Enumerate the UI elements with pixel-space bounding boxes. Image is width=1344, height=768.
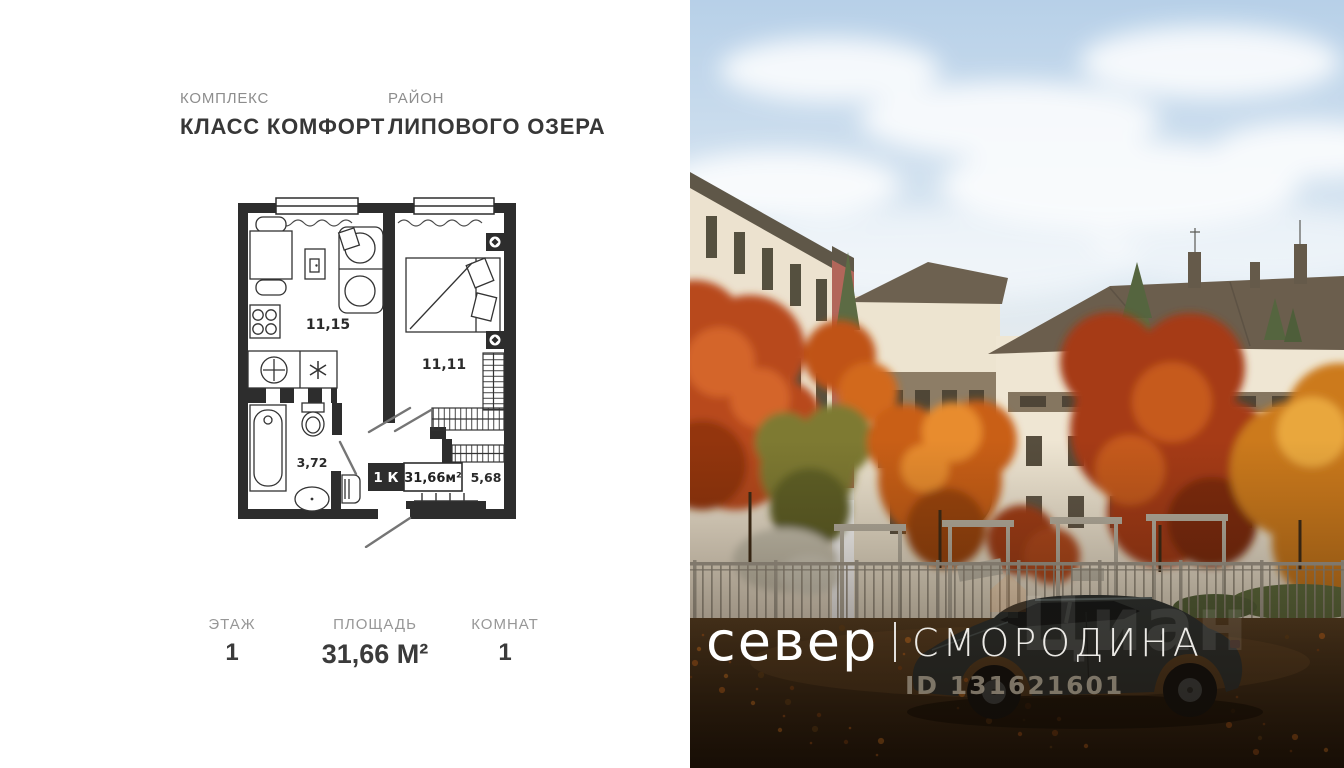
stat-rooms-value: 1 [445,639,565,667]
listing-card: КОМПЛЕКС КЛАСС КОМФОРТ РАЙОН ЛИПОВОГО ОЗ… [0,0,1344,768]
stat-area: ПЛОЩАДЬ 31,66 М² [295,616,455,670]
listing-id-watermark: ID 131621601 [905,671,1124,700]
curtain-lines [268,220,482,226]
floor-plan: 11,15 11,11 3,72 5,68 1 К 31,66м² [238,195,516,548]
complex-label: КОМПЛЕКС [180,90,385,107]
badge-rooms: 1 К [373,470,398,486]
floor-plan-svg: 11,15 11,11 3,72 5,68 1 К 31,66м² [238,195,516,548]
stat-floor-value: 1 [172,639,292,667]
caption-divider [894,622,896,662]
plan-badge: 1 К 31,66м² [368,463,462,491]
chair-icon [256,217,286,232]
stat-rooms-label: КОМНАТ [445,616,565,633]
render-scene: Циан север СМОРОДИНА ID 131621601 [690,0,1344,768]
complex-header: КОМПЛЕКС КЛАСС КОМФОРТ [180,90,385,140]
stat-rooms: КОМНАТ 1 [445,616,565,667]
washer-icon [342,475,360,503]
area-bathroom: 3,72 [297,455,328,470]
badge-area: 31,66м² [404,471,461,486]
area-hall: 5,68 [471,470,502,485]
stat-floor-label: ЭТАЖ [172,616,292,633]
area-living: 11,15 [306,317,350,333]
brand-name: север [706,610,878,673]
chair-icon [256,280,286,295]
area-bedroom: 11,11 [422,357,466,373]
plan-panel: КОМПЛЕКС КЛАСС КОМФОРТ РАЙОН ЛИПОВОГО ОЗ… [0,0,690,768]
district-name: ЛИПОВОГО ОЗЕРА [388,114,605,140]
project-name: СМОРОДИНА [912,621,1203,665]
radiator-icon [414,493,478,501]
stat-area-value: 31,66 М² [295,639,455,670]
toilet-icon [302,403,324,436]
stat-area-label: ПЛОЩАДЬ [295,616,455,633]
complex-name: КЛАСС КОМФОРТ [180,114,385,140]
district-label: РАЙОН [388,90,605,107]
stat-floor: ЭТАЖ 1 [172,616,292,667]
district-header: РАЙОН ЛИПОВОГО ОЗЕРА [388,90,605,140]
table-icon [250,231,292,279]
bed-icon [406,258,500,332]
photo-panel: Циан север СМОРОДИНА ID 131621601 [690,0,1344,768]
